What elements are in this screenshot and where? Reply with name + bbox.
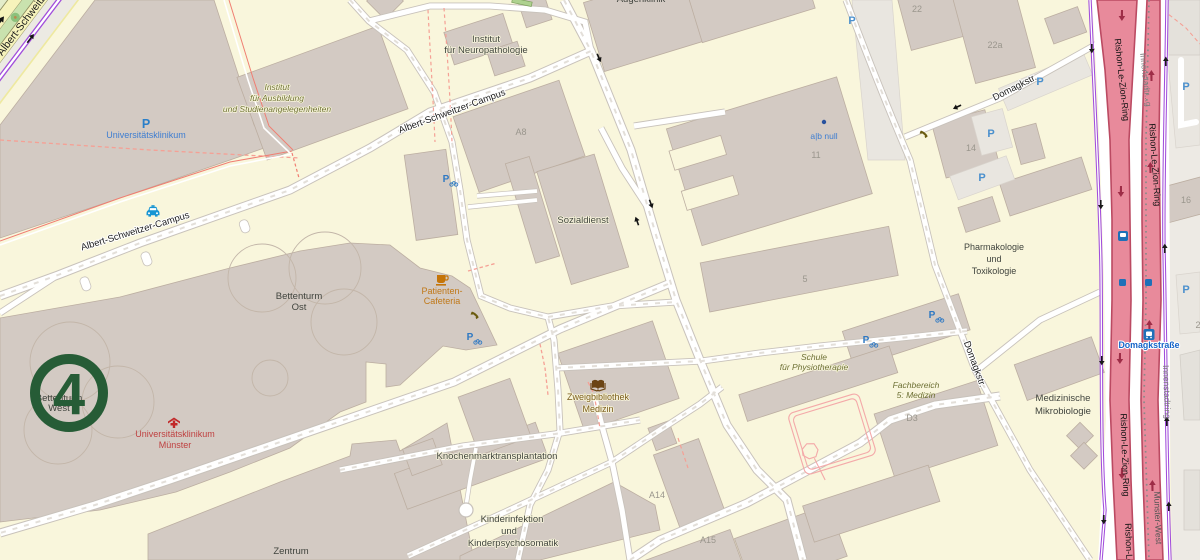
svg-text:22a: 22a xyxy=(987,40,1002,50)
svg-text:Augenklinik: Augenklinik xyxy=(617,0,666,5)
svg-text:Zentrum: Zentrum xyxy=(273,546,308,557)
svg-text:5: Medizin: 5: Medizin xyxy=(897,390,936,400)
svg-text:Universitätsklinikum: Universitätsklinikum xyxy=(135,429,215,439)
svg-text:16: 16 xyxy=(1181,195,1191,205)
svg-text:Kinderpsychosomatik: Kinderpsychosomatik xyxy=(468,538,559,549)
svg-text:P: P xyxy=(848,15,855,27)
svg-text:für Physiotherapie: für Physiotherapie xyxy=(780,362,849,372)
svg-text:14: 14 xyxy=(966,143,976,153)
svg-text:Fachbereich: Fachbereich xyxy=(893,380,940,390)
svg-text:Innenstadtring: Innenstadtring xyxy=(1161,365,1173,419)
svg-text:P: P xyxy=(978,172,985,184)
svg-text:und Studienangelegenheiten: und Studienangelegenheiten xyxy=(223,104,332,114)
svg-text:Münster: Münster xyxy=(159,440,192,450)
svg-text:Schule: Schule xyxy=(801,352,827,362)
svg-text:für Ausbildung: für Ausbildung xyxy=(250,93,304,103)
svg-text:A15: A15 xyxy=(700,535,716,545)
svg-text:P: P xyxy=(1036,76,1043,88)
svg-text:Ost: Ost xyxy=(292,302,307,313)
svg-text:Institut: Institut xyxy=(264,82,290,92)
svg-text:A14: A14 xyxy=(649,490,665,500)
svg-text:D3: D3 xyxy=(906,413,918,423)
svg-text:Bettenturm: Bettenturm xyxy=(276,291,323,302)
svg-text:2: 2 xyxy=(1195,320,1200,330)
svg-text:P: P xyxy=(443,174,450,185)
svg-text:P: P xyxy=(929,310,936,321)
svg-text:P: P xyxy=(1182,284,1189,296)
svg-text:und: und xyxy=(501,526,517,537)
svg-text:und: und xyxy=(986,254,1001,264)
svg-text:Pharmakologie: Pharmakologie xyxy=(964,242,1024,252)
svg-text:Medizin: Medizin xyxy=(582,404,613,414)
svg-text:Domagkstraße: Domagkstraße xyxy=(1118,340,1179,350)
svg-text:Cafeteria: Cafeteria xyxy=(424,296,461,306)
svg-text:P: P xyxy=(142,117,150,131)
svg-text:4: 4 xyxy=(53,362,85,427)
svg-text:Medizinische: Medizinische xyxy=(1036,393,1091,404)
svg-text:Universitätsklinikum: Universitätsklinikum xyxy=(106,130,186,140)
svg-text:Sozialdienst: Sozialdienst xyxy=(557,215,609,226)
svg-text:für Neuropathologie: für Neuropathologie xyxy=(444,45,527,56)
svg-text:Toxikologie: Toxikologie xyxy=(972,266,1017,276)
svg-text:Kinderinfektion: Kinderinfektion xyxy=(481,514,544,525)
svg-text:P: P xyxy=(467,332,474,343)
svg-text:22: 22 xyxy=(912,4,922,14)
svg-text:P: P xyxy=(987,128,994,140)
svg-text:a|b null: a|b null xyxy=(810,131,837,141)
svg-text:Patienten-: Patienten- xyxy=(421,286,462,296)
svg-text:A8: A8 xyxy=(515,127,526,137)
svg-text:P: P xyxy=(863,335,870,346)
svg-text:11: 11 xyxy=(811,150,820,160)
svg-text:Rishon-Le-Z: Rishon-Le-Z xyxy=(1123,523,1135,560)
svg-text:Knochenmarktransplantation: Knochenmarktransplantation xyxy=(437,451,558,462)
svg-text:P: P xyxy=(1182,81,1189,93)
svg-text:5: 5 xyxy=(802,274,807,284)
svg-text:Institut: Institut xyxy=(472,34,500,45)
svg-text:Zweigbibliothek: Zweigbibliothek xyxy=(567,392,630,402)
svg-text:Mikrobiologie: Mikrobiologie xyxy=(1035,406,1091,417)
svg-text:Munster-West: Munster-West xyxy=(1152,491,1164,545)
